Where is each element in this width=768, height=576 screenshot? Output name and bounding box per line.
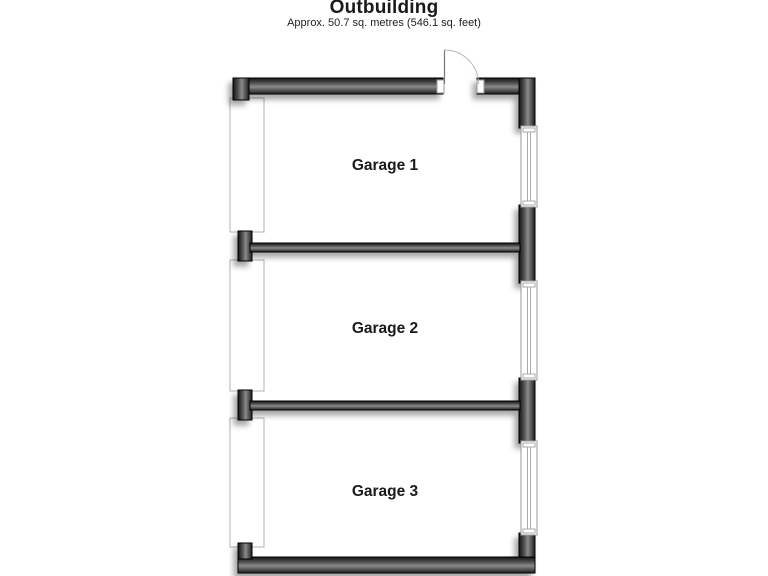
room-label-garage-3: Garage 3	[352, 483, 418, 501]
window-1	[521, 126, 537, 207]
garage-door-3	[230, 418, 264, 547]
wall-bottom	[238, 557, 535, 573]
floorplan-page: Outbuilding Approx. 50.7 sq. metres (546…	[0, 0, 768, 576]
room-label-garage-2: Garage 2	[352, 320, 418, 338]
room-label-garage-1: Garage 1	[352, 157, 418, 175]
wall-corner-top-left	[233, 78, 249, 100]
wall-corner-bottom-left	[238, 543, 252, 559]
wall-divider-2	[250, 401, 520, 410]
wall-top-left-segment	[233, 78, 443, 94]
garage-door-1	[230, 98, 264, 232]
window-3	[521, 441, 537, 535]
garage-door-2	[230, 260, 264, 391]
window-2	[521, 281, 537, 380]
wall-right-segment-2	[519, 205, 535, 283]
wall-divider-1	[250, 243, 520, 252]
door-jamb-left	[437, 80, 444, 93]
wall-right-segment-1	[519, 78, 535, 128]
entrance-door	[437, 50, 484, 93]
windows	[521, 126, 537, 535]
door-swing-arc	[445, 50, 479, 84]
garage-door-symbols	[230, 98, 264, 547]
wall-right-segment-3	[519, 378, 535, 443]
